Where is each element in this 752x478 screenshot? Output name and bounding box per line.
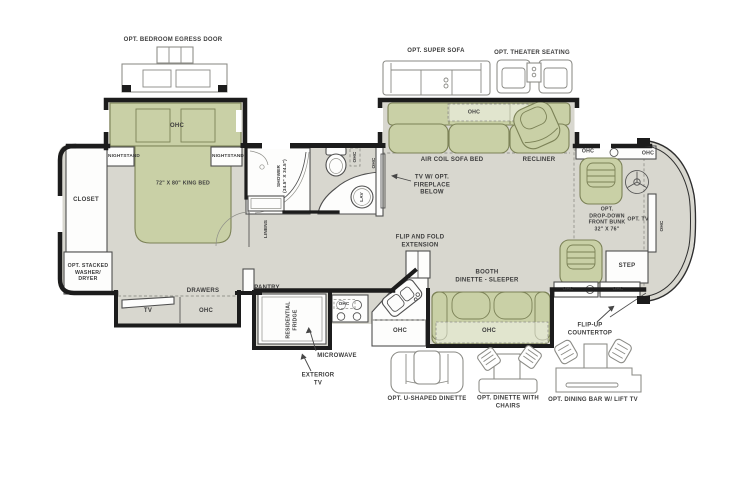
rv-floorplan: OPT. BEDROOM EGRESS DOOR OPT. SUPER SOFA… [0,0,752,478]
cooktop [332,295,368,322]
u-shaped-dinette [391,351,463,393]
egress-door [157,47,193,63]
step-well [606,251,648,283]
passenger-seat [560,240,602,285]
refrigerator [258,294,326,344]
dinette-table-chairs [476,344,542,393]
theater-seats [497,60,572,93]
opt-tv-cabinet [648,194,656,252]
super-sofa [383,61,490,95]
driver-seat [580,158,622,204]
closet-cabinet [64,148,112,294]
booth-dinette [432,292,550,344]
dining-bar [553,338,641,392]
floorplan-drawing [0,0,752,478]
linen-cabinet [248,196,284,211]
bedroom-ohc-cabinet [110,103,241,146]
wardrobe-slide [122,64,227,92]
